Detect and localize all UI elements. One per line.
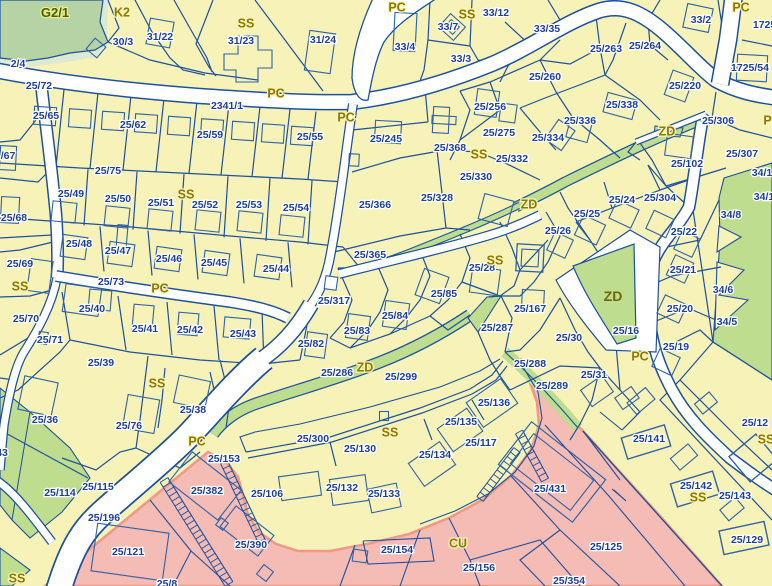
- svg-text:33/2: 33/2: [691, 14, 712, 26]
- svg-text:34/1: 34/1: [752, 167, 772, 179]
- svg-text:31/23: 31/23: [228, 35, 254, 47]
- svg-text:ZD: ZD: [357, 361, 374, 375]
- svg-text:25/55: 25/55: [297, 131, 323, 143]
- svg-text:25/24: 25/24: [609, 194, 635, 206]
- svg-text:SS: SS: [758, 433, 772, 447]
- svg-text:25/40: 25/40: [79, 303, 105, 315]
- svg-text:34/8: 34/8: [721, 209, 742, 221]
- svg-text:25/220: 25/220: [669, 80, 701, 92]
- svg-text:25/106: 25/106: [251, 488, 283, 500]
- svg-text:25/121: 25/121: [112, 546, 144, 558]
- svg-text:25/71: 25/71: [37, 334, 63, 346]
- svg-text:34/1: 34/1: [754, 191, 772, 203]
- svg-text:25/46: 25/46: [156, 253, 182, 265]
- svg-text:1725/54: 1725/54: [731, 62, 769, 74]
- svg-text:25/264: 25/264: [629, 40, 661, 52]
- svg-text:25/76: 25/76: [116, 420, 142, 432]
- svg-text:34/5: 34/5: [717, 316, 738, 328]
- svg-text:25/390: 25/390: [235, 539, 267, 551]
- svg-text:31/24: 31/24: [310, 34, 336, 46]
- svg-text:33/12: 33/12: [483, 7, 509, 19]
- svg-text:SS: SS: [149, 377, 166, 391]
- svg-text:25/52: 25/52: [192, 199, 218, 211]
- svg-text:25/275: 25/275: [483, 127, 515, 139]
- svg-text:25/338: 25/338: [606, 99, 638, 111]
- svg-text:25/82: 25/82: [298, 338, 324, 350]
- svg-text:25/366: 25/366: [359, 199, 391, 211]
- svg-text:25/125: 25/125: [590, 541, 622, 553]
- svg-text:PC: PC: [763, 114, 772, 128]
- svg-text:25/334: 25/334: [532, 132, 564, 144]
- svg-text:25/69: 25/69: [7, 258, 33, 270]
- svg-text:25/143: 25/143: [719, 490, 751, 502]
- svg-text:25/43: 25/43: [230, 328, 256, 340]
- svg-text:PC: PC: [732, 1, 749, 15]
- svg-text:25/260: 25/260: [529, 71, 561, 83]
- svg-text:SS: SS: [690, 491, 707, 505]
- svg-text:25/354: 25/354: [553, 575, 585, 586]
- svg-text:25/196: 25/196: [88, 512, 120, 524]
- svg-text:30/3: 30/3: [113, 36, 134, 48]
- svg-text:25/136: 25/136: [478, 397, 510, 409]
- svg-text:25/129: 25/129: [731, 534, 763, 546]
- svg-text:25/332: 25/332: [496, 153, 528, 165]
- svg-text:25/134: 25/134: [419, 449, 451, 461]
- svg-text:25/141: 25/141: [633, 433, 665, 445]
- svg-text:2/4: 2/4: [11, 58, 26, 70]
- svg-text:SS: SS: [382, 426, 399, 440]
- svg-text:PC: PC: [337, 111, 354, 125]
- svg-text:25/368: 25/368: [434, 142, 466, 154]
- svg-text:25/328: 25/328: [421, 192, 453, 204]
- svg-text:25/153: 25/153: [208, 453, 240, 465]
- svg-text:25/306: 25/306: [702, 115, 734, 127]
- svg-text:G2/1: G2/1: [41, 5, 69, 20]
- svg-text:25/256: 25/256: [474, 101, 506, 113]
- svg-text:SS: SS: [487, 254, 504, 268]
- svg-text:33/3: 33/3: [451, 53, 472, 65]
- svg-text:SS: SS: [12, 280, 29, 294]
- svg-text:25/16: 25/16: [613, 325, 639, 337]
- svg-text:25/72: 25/72: [26, 80, 52, 92]
- svg-text:25/8: 25/8: [157, 578, 178, 586]
- svg-text:25/304: 25/304: [644, 192, 676, 204]
- svg-text:25/135: 25/135: [445, 416, 477, 428]
- svg-text:K2: K2: [114, 6, 130, 20]
- svg-text:PC: PC: [388, 1, 405, 15]
- svg-text:25/47: 25/47: [105, 245, 131, 257]
- svg-text:1725/: 1725/: [753, 19, 772, 31]
- svg-text:25/317: 25/317: [318, 295, 350, 307]
- svg-text:25/48: 25/48: [66, 238, 92, 250]
- svg-text:25/167: 25/167: [514, 303, 546, 315]
- svg-text:SS: SS: [459, 8, 476, 22]
- svg-text:25/286: 25/286: [321, 367, 353, 379]
- svg-text:25/73: 25/73: [98, 276, 124, 288]
- svg-text:25/41: 25/41: [132, 323, 158, 335]
- svg-text:25/12: 25/12: [742, 417, 768, 429]
- svg-text:25/36: 25/36: [32, 414, 58, 426]
- svg-text:25/365: 25/365: [354, 249, 386, 261]
- svg-text:25/156: 25/156: [463, 562, 495, 574]
- svg-text:SS: SS: [238, 17, 255, 31]
- svg-text:33/35: 33/35: [534, 23, 560, 35]
- svg-text:25/83: 25/83: [344, 325, 370, 337]
- svg-text:25/54: 25/54: [283, 202, 309, 214]
- svg-text:33/4: 33/4: [395, 41, 416, 53]
- svg-text:25/154: 25/154: [381, 544, 413, 556]
- svg-text:25/39: 25/39: [88, 357, 114, 369]
- svg-text:SS: SS: [471, 148, 488, 162]
- svg-text:25/132: 25/132: [326, 482, 358, 494]
- svg-text:ZD: ZD: [604, 288, 623, 304]
- svg-text:33/7: 33/7: [438, 21, 459, 33]
- svg-text:43: 43: [0, 447, 8, 459]
- svg-text:ZD: ZD: [521, 198, 538, 212]
- svg-text:/67: /67: [1, 150, 16, 162]
- svg-text:25/21: 25/21: [670, 264, 696, 276]
- svg-text:25/25: 25/25: [574, 208, 600, 220]
- svg-text:25/19: 25/19: [663, 341, 689, 353]
- svg-text:25/245: 25/245: [370, 133, 402, 145]
- svg-text:25/336: 25/336: [564, 115, 596, 127]
- svg-text:25/65: 25/65: [33, 110, 59, 122]
- svg-text:25/85: 25/85: [431, 288, 457, 300]
- svg-text:25/44: 25/44: [263, 263, 289, 275]
- svg-text:31/22: 31/22: [147, 31, 173, 43]
- svg-text:25/130: 25/130: [344, 443, 376, 455]
- svg-text:25/382: 25/382: [191, 485, 223, 497]
- svg-text:25/49: 25/49: [58, 188, 84, 200]
- svg-text:25/300: 25/300: [297, 433, 329, 445]
- svg-text:25/42: 25/42: [177, 324, 203, 336]
- svg-text:PC: PC: [631, 350, 648, 364]
- svg-text:25/45: 25/45: [201, 257, 227, 269]
- svg-text:25/114: 25/114: [44, 487, 76, 499]
- svg-text:25/22: 25/22: [671, 226, 697, 238]
- svg-text:ZD: ZD: [659, 125, 676, 139]
- svg-text:25/75: 25/75: [95, 165, 121, 177]
- svg-text:25/59: 25/59: [197, 129, 223, 141]
- svg-text:SS: SS: [9, 572, 26, 586]
- svg-text:25/299: 25/299: [385, 371, 417, 383]
- svg-text:PC: PC: [188, 435, 205, 449]
- svg-text:25/263: 25/263: [590, 43, 622, 55]
- svg-text:PC: PC: [151, 282, 168, 296]
- svg-text:25/133: 25/133: [368, 488, 400, 500]
- svg-text:25/50: 25/50: [105, 193, 131, 205]
- svg-text:34/6: 34/6: [713, 284, 734, 296]
- svg-text:25/38: 25/38: [180, 404, 206, 416]
- svg-text:25/31: 25/31: [581, 369, 607, 381]
- svg-text:25/20: 25/20: [667, 303, 693, 315]
- svg-text:25/30: 25/30: [556, 332, 582, 344]
- svg-text:25/117: 25/117: [465, 437, 497, 449]
- svg-text:25/102: 25/102: [671, 158, 703, 170]
- svg-text:25/51: 25/51: [148, 197, 174, 209]
- svg-text:25/287: 25/287: [481, 322, 513, 334]
- svg-text:25/62: 25/62: [120, 119, 146, 131]
- svg-text:PC: PC: [267, 87, 284, 101]
- svg-text:25/115: 25/115: [82, 481, 114, 493]
- svg-text:25/330: 25/330: [460, 171, 492, 183]
- svg-text:25/289: 25/289: [536, 380, 568, 392]
- svg-text:2341/1: 2341/1: [211, 100, 243, 112]
- svg-text:25/431: 25/431: [534, 483, 566, 495]
- svg-text:25/68: 25/68: [1, 212, 27, 224]
- svg-text:CU: CU: [449, 537, 467, 551]
- svg-text:25/307: 25/307: [726, 148, 758, 160]
- svg-text:25/70: 25/70: [13, 313, 39, 325]
- svg-text:25/288: 25/288: [514, 358, 546, 370]
- svg-text:25/26: 25/26: [545, 225, 571, 237]
- svg-text:25/84: 25/84: [382, 310, 408, 322]
- svg-text:25/53: 25/53: [236, 199, 262, 211]
